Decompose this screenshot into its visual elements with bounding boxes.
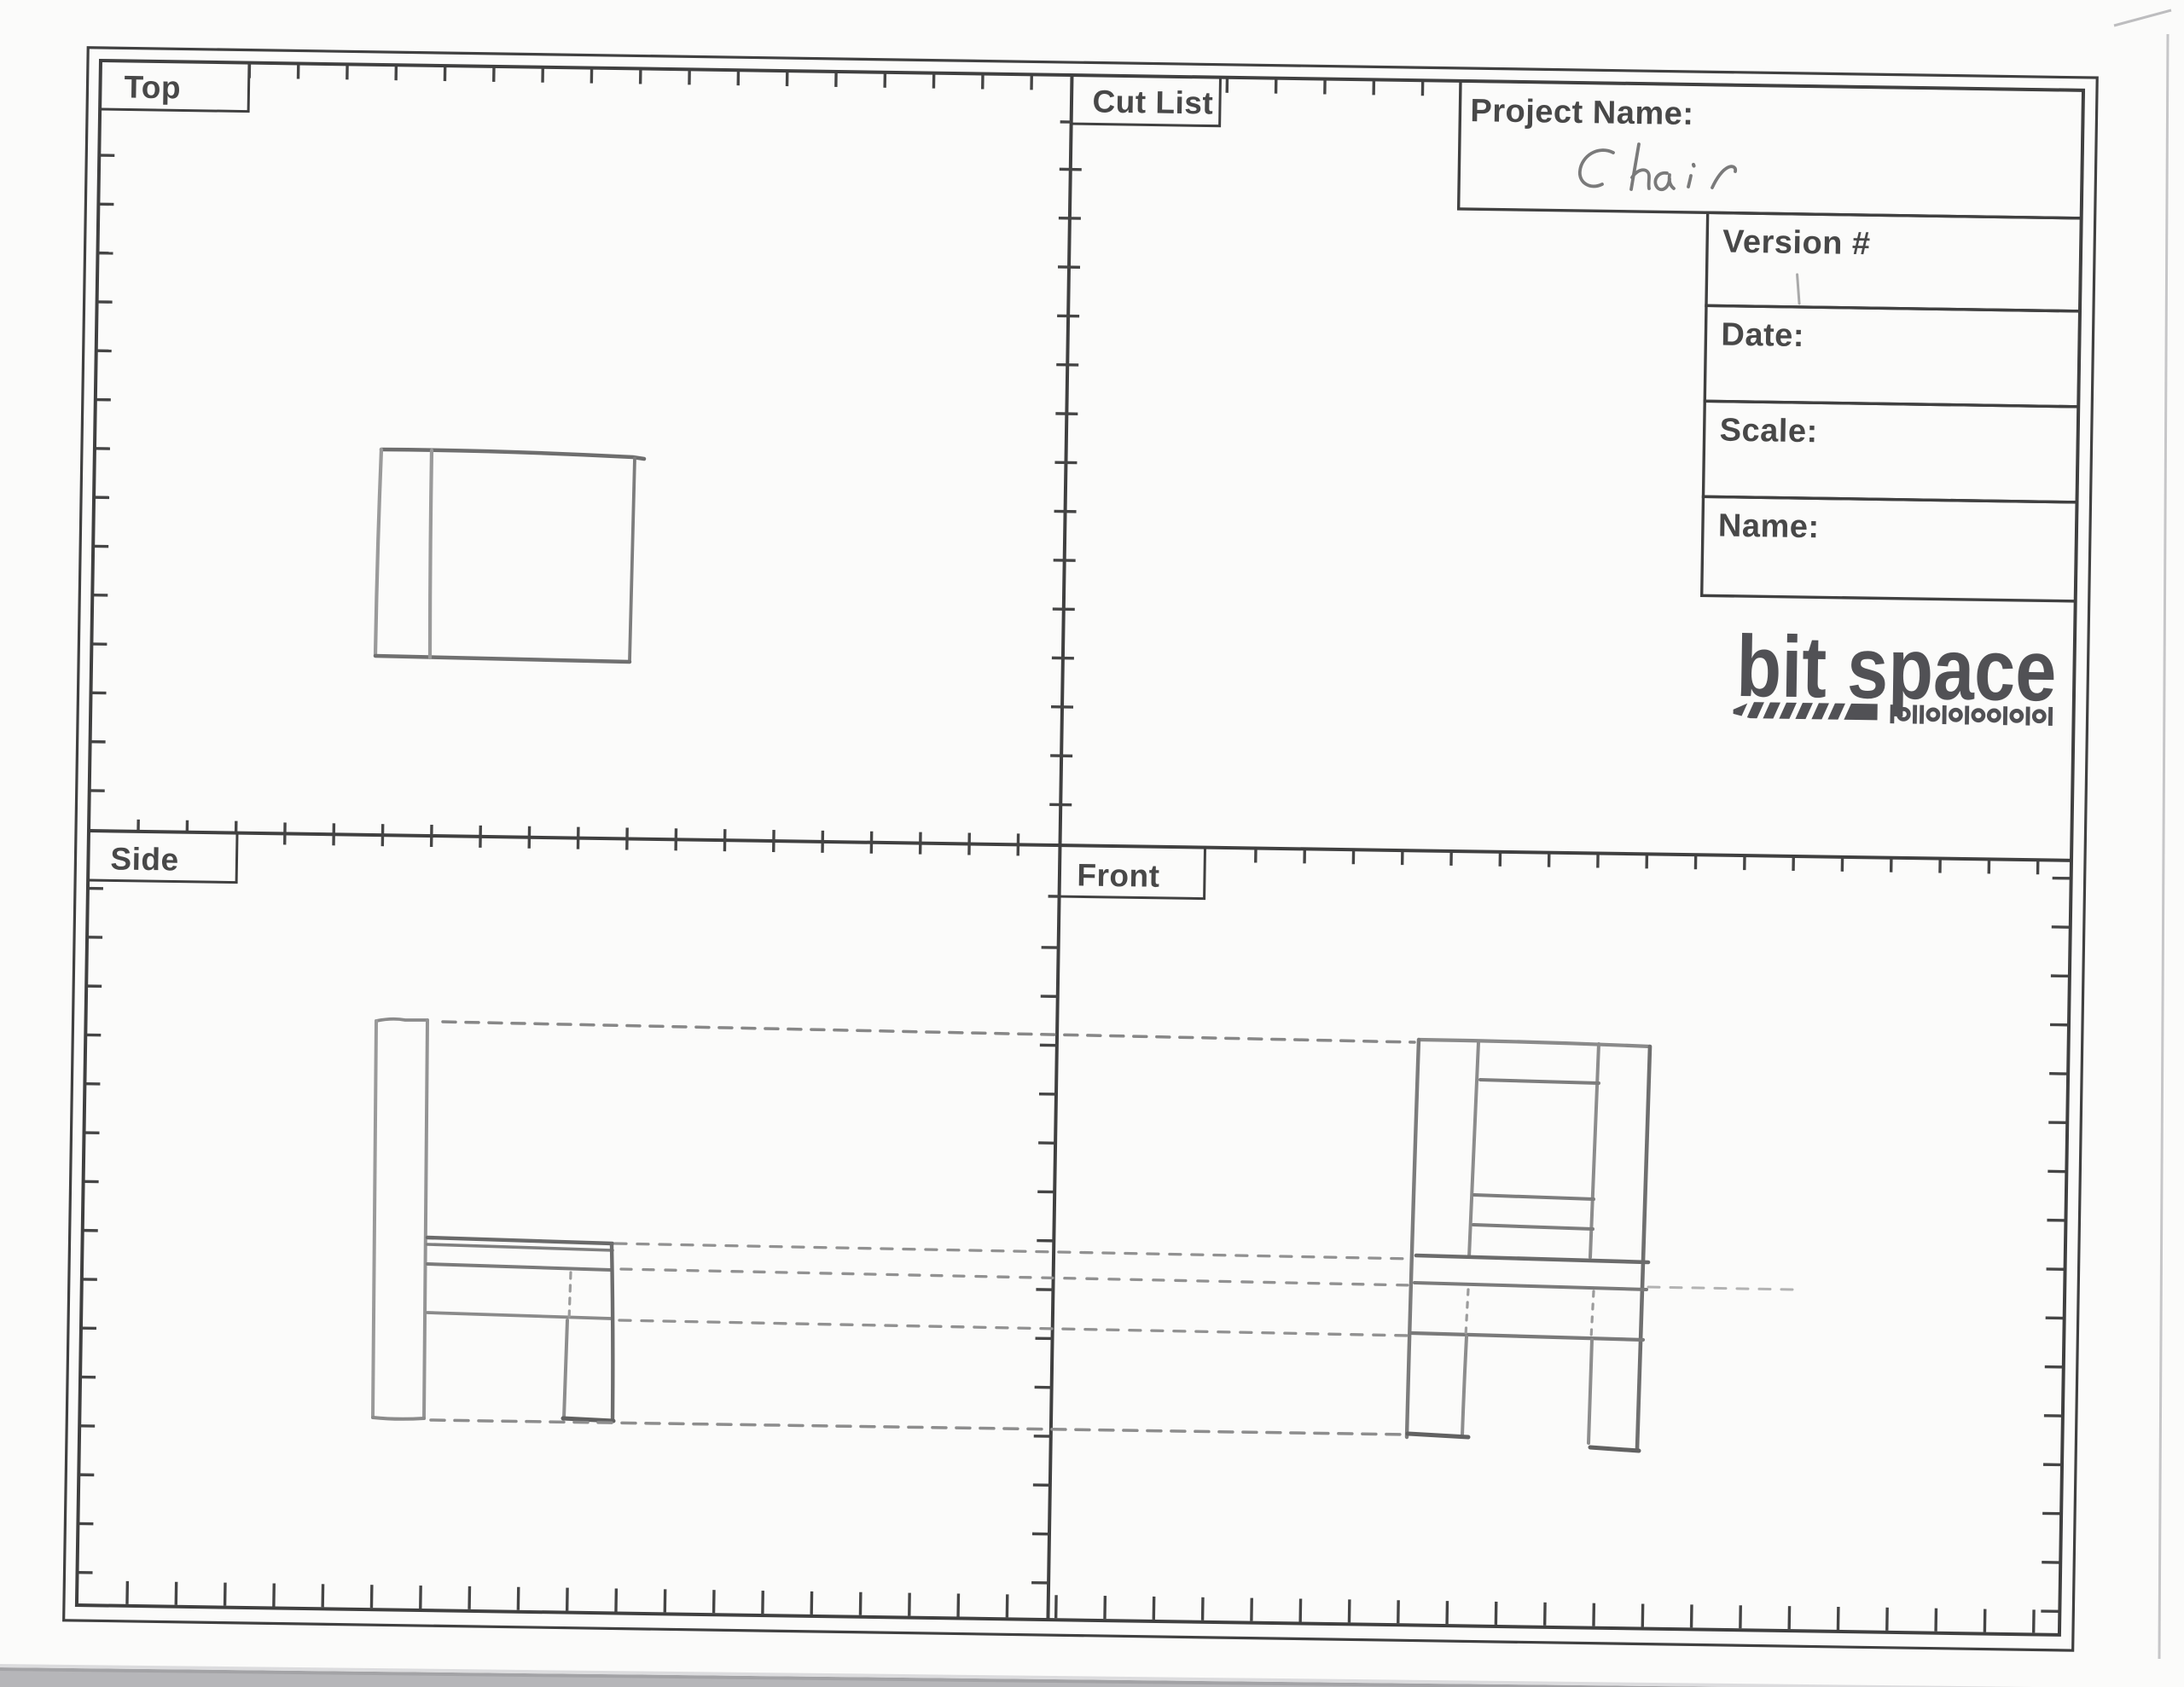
svg-text:Project Name:: Project Name: <box>1470 93 1694 132</box>
svg-text:Scale:: Scale: <box>1719 413 1818 450</box>
svg-text:Cut List: Cut List <box>1092 84 1213 120</box>
svg-text:Side: Side <box>110 841 179 877</box>
svg-text:Date:: Date: <box>1721 317 1804 354</box>
svg-text:Name:: Name: <box>1718 508 1820 546</box>
svg-text:Top: Top <box>124 69 181 105</box>
svg-text:Front: Front <box>1077 857 1160 893</box>
svg-text:Version #: Version # <box>1722 224 1871 263</box>
